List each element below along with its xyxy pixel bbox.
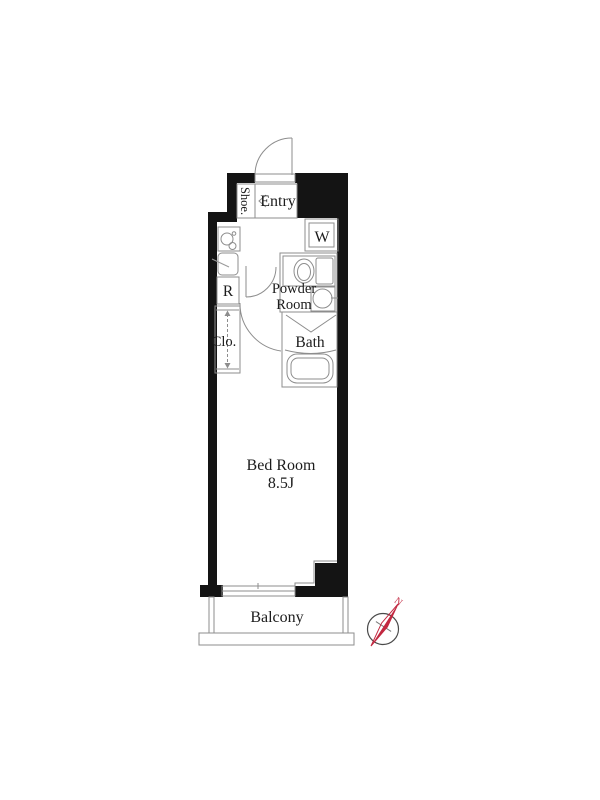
entry-threshold [255, 174, 295, 182]
entry-door-arc [255, 138, 292, 175]
toilet-seat-icon [298, 264, 311, 281]
interior-doors [240, 266, 281, 351]
compass-icon: N [368, 595, 405, 646]
bath-label: Bath [295, 334, 325, 351]
powder-room-label-line1: Powder [272, 281, 316, 297]
folding-door-icon [286, 315, 336, 332]
closet-label: Clo. [212, 334, 237, 350]
bathtub-inner [291, 358, 329, 379]
kitchen-sink-icon [218, 253, 238, 275]
toilet-tank-icon [316, 258, 333, 284]
fridge-label: R [223, 283, 234, 300]
balcony-rail-left [209, 597, 214, 633]
powder-room-label-line2: Room [276, 297, 312, 313]
arrow-down-icon [225, 363, 231, 369]
bedroom-window [222, 583, 295, 596]
balcony-slab [199, 633, 354, 645]
compass-north-label: N [392, 595, 404, 608]
balcony-label: Balcony [250, 609, 303, 626]
bedroom-name-label: Bed Room [247, 457, 316, 474]
arrow-up-icon [225, 311, 231, 317]
bedroom-door-arc [240, 303, 281, 351]
floorplan-canvas: N Entry Shoe. W Powder Room Bath R Clo. … [0, 0, 600, 800]
burner-knob-icon [232, 232, 236, 236]
washer-label: W [314, 229, 330, 246]
bedroom-size-label: 8.5J [268, 475, 294, 492]
corner-pillar [295, 563, 348, 597]
toilet-bowl-icon [294, 259, 314, 283]
balcony-rail-right [343, 597, 348, 633]
shoe-closet-label: Shoe. [238, 187, 252, 215]
entry-label: Entry [260, 193, 296, 210]
burner-small-icon [229, 243, 236, 250]
